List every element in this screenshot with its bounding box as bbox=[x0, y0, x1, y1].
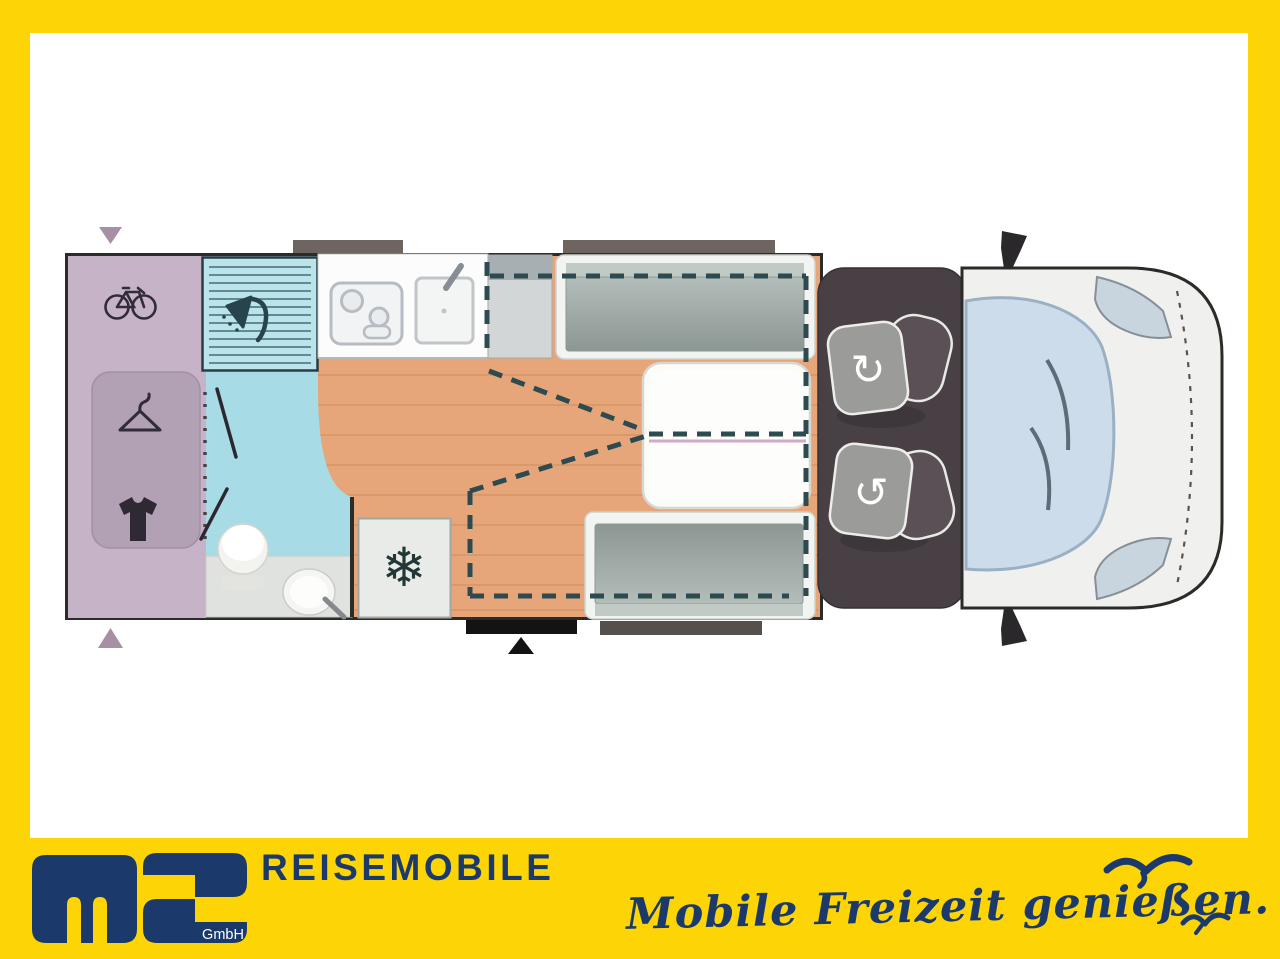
gmbh-label: GmbH bbox=[202, 927, 244, 943]
seagull-icon-small bbox=[1183, 915, 1228, 933]
swivel-arrow-icon: ↺ bbox=[853, 468, 888, 517]
garage-door-marker-bottom bbox=[98, 628, 123, 648]
company-name: REISEMOBILE bbox=[261, 849, 554, 888]
refrigerator: ❄ bbox=[359, 519, 451, 618]
window-marker-kitchen bbox=[293, 240, 403, 253]
windshield bbox=[966, 298, 1114, 570]
mirror-bottom bbox=[1001, 608, 1027, 646]
floorplan-diagram: ❄ bbox=[0, 0, 1280, 959]
stove-icon bbox=[331, 283, 402, 344]
swivel-arrow-icon: ↻ bbox=[850, 345, 885, 394]
dinette-bench-top bbox=[556, 255, 815, 359]
cab-area: ↻ ↺ bbox=[818, 268, 966, 608]
ms-logo: GmbH bbox=[30, 851, 250, 946]
logo-m bbox=[32, 855, 137, 943]
kitchen-counter bbox=[318, 254, 488, 358]
window-marker-dinette-top bbox=[563, 240, 775, 253]
dinette-bench-bottom bbox=[585, 512, 815, 619]
window-marker-dinette-bottom bbox=[600, 621, 762, 635]
advertisement-page: ❄ bbox=[0, 0, 1280, 959]
seagull-icon-large bbox=[1107, 858, 1189, 886]
mirror-top bbox=[1001, 231, 1027, 269]
logo-s-top bbox=[143, 853, 247, 897]
sink-icon bbox=[416, 266, 473, 343]
entry-step bbox=[466, 620, 577, 634]
garage-door-marker-top bbox=[99, 227, 122, 244]
garage-area bbox=[68, 256, 206, 618]
snowflake-icon: ❄ bbox=[381, 536, 426, 599]
vehicle-hood bbox=[962, 231, 1222, 646]
overhead-cupboard bbox=[488, 255, 552, 358]
seagulls bbox=[1095, 848, 1240, 943]
toilet-icon bbox=[218, 524, 268, 590]
entry-arrow-icon bbox=[508, 637, 534, 654]
